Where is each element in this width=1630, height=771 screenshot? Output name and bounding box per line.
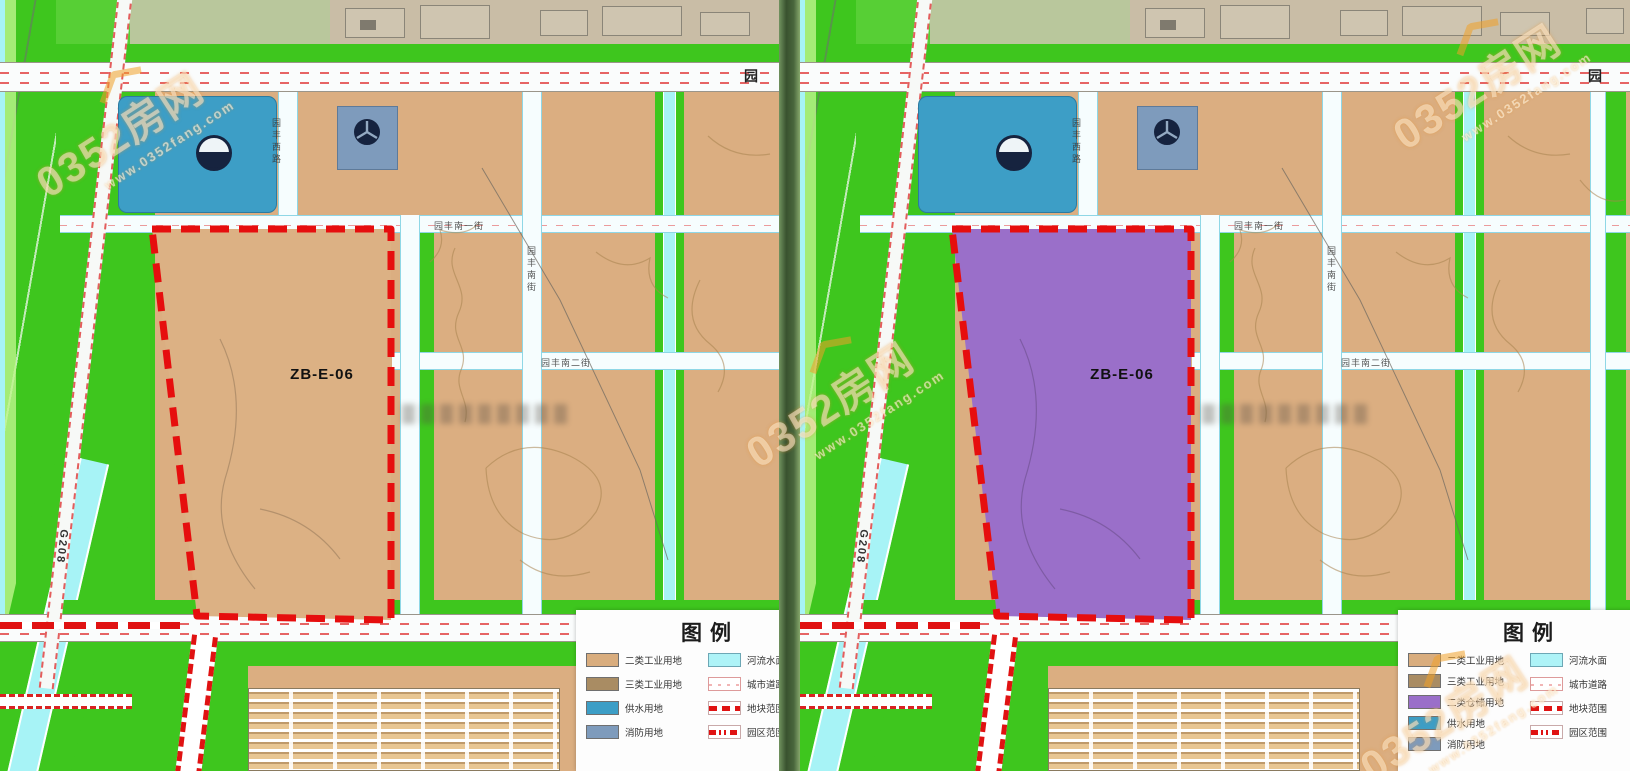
- legend-item-label: 消防用地: [625, 725, 663, 739]
- warehouse-row-buildings: [1048, 688, 1360, 771]
- legend-item: 消防用地: [586, 725, 708, 739]
- water-supply-parcel: [918, 96, 1077, 213]
- legend-item-label: 二类工业用地: [625, 653, 682, 667]
- building-outline: [1402, 6, 1482, 36]
- legend-swatch-boundary: [1530, 701, 1563, 715]
- road-vertical-east: [1322, 92, 1342, 614]
- green-buffer-strip: [856, 44, 1630, 62]
- legend-swatch-fill: [1408, 716, 1441, 730]
- building-outline: [602, 6, 682, 36]
- legend-swatch-fill: [586, 653, 619, 667]
- road-south-2nd-street: [1192, 352, 1630, 370]
- road-name-label-vertical: 园丰南街: [1325, 246, 1338, 294]
- fire-station-icon: [1152, 117, 1182, 147]
- legend-item-label: 地块范围: [1569, 701, 1607, 715]
- legend-item-label: 三类工业用地: [1447, 674, 1504, 688]
- parcel-code-label: ZB-E-06: [232, 366, 412, 383]
- legend-swatch-fill: [1408, 695, 1441, 709]
- legend-swatch-boundary: [708, 701, 741, 715]
- legend-item: 河流水面: [708, 653, 779, 667]
- olive-patch: [930, 0, 1130, 46]
- water-supply-parcel: [118, 96, 277, 213]
- olive-patch: [130, 0, 330, 46]
- legend-item: 供水用地: [1408, 716, 1530, 730]
- planning-map-panel: G208: [800, 0, 1630, 771]
- legend-item: 二类工业用地: [1408, 653, 1530, 667]
- building-outline: [1500, 12, 1550, 36]
- warehouse-row-buildings: [248, 688, 560, 771]
- road-stub-southwest: [800, 694, 932, 709]
- legend-swatch-fill: [1408, 653, 1441, 667]
- legend-swatch-fill: [1408, 737, 1441, 751]
- legend-item: 城市道路: [1530, 677, 1630, 691]
- legend-item: 三类工业用地: [1408, 674, 1530, 688]
- building-outline: [1586, 8, 1624, 34]
- legend-item: 地块范围: [1530, 701, 1630, 715]
- legend-column-1: 二类工业用地三类工业用地供水用地消防用地: [586, 653, 708, 749]
- legend-item-label: 城市道路: [1569, 677, 1607, 691]
- zb-e-06-parcel: [140, 219, 396, 627]
- legend-column-1: 二类工业用地三类工业用地二类仓储用地供水用地消防用地: [1408, 653, 1530, 758]
- road-stub-southwest: [0, 694, 132, 709]
- road-name-label: 园丰南二街: [541, 356, 591, 369]
- road-name-label-vertical: 园丰西路: [270, 118, 283, 166]
- road-name-label-vertical: 园丰南街: [525, 246, 538, 294]
- legend-item-label: 地块范围: [747, 701, 779, 715]
- legend-item-label: 二类仓储用地: [1447, 695, 1504, 709]
- faint-map-caption: [1202, 404, 1367, 424]
- legend-swatch-water: [708, 653, 741, 667]
- legend-item-label: 园区范围: [747, 725, 779, 739]
- legend-item: 园区范围: [708, 725, 779, 739]
- screenshot-stage: G208: [0, 0, 1630, 771]
- building-outline: [420, 5, 490, 39]
- legend-swatch-road: [708, 677, 741, 691]
- legend-swatch-zone: [1530, 725, 1563, 739]
- legend-item-label: 三类工业用地: [625, 677, 682, 691]
- building-footprint: [1160, 20, 1176, 30]
- legend-item-label: 供水用地: [1447, 716, 1485, 730]
- legend-swatch-fill: [586, 725, 619, 739]
- legend-item-label: 供水用地: [625, 701, 663, 715]
- legend-item-label: 二类工业用地: [1447, 653, 1504, 667]
- legend-column-2: 河流水面城市道路地块范围园区范围: [1530, 653, 1630, 758]
- building-outline: [700, 12, 750, 36]
- road-name-label: 园丰南一街: [434, 219, 484, 232]
- fire-station-icon: [352, 117, 382, 147]
- legend-swatch-fill: [1408, 674, 1441, 688]
- water-plant-icon: [996, 135, 1032, 171]
- building-outline: [540, 10, 588, 36]
- legend-column-2: 河流水面城市道路地块范围园区范围: [708, 653, 779, 749]
- road-name-label-vertical: 园丰西路: [1070, 118, 1083, 166]
- road-vertical-east: [522, 92, 542, 614]
- fire-protection-parcel: [1137, 106, 1198, 170]
- legend-item: 园区范围: [1530, 725, 1630, 739]
- legend-item: 地块范围: [708, 701, 779, 715]
- road-name-label: 园丰南二街: [1341, 356, 1391, 369]
- legend-item: 三类工业用地: [586, 677, 708, 691]
- legend-title: 图例: [576, 610, 779, 651]
- legend-title: 图例: [1398, 610, 1630, 651]
- fire-protection-parcel: [337, 106, 398, 170]
- highway-g208-label: G208: [54, 529, 70, 565]
- legend-item: 二类工业用地: [586, 653, 708, 667]
- legend-item: 消防用地: [1408, 737, 1530, 751]
- legend-item: 城市道路: [708, 677, 779, 691]
- legend-item-label: 消防用地: [1447, 737, 1485, 751]
- legend-item: 河流水面: [1530, 653, 1630, 667]
- legend-item-label: 城市道路: [747, 677, 779, 691]
- building-outline: [1340, 10, 1388, 36]
- faint-map-caption: [402, 404, 567, 424]
- top-road-name-label: 园 丰: [744, 66, 779, 86]
- top-road-name-label: 园 丰: [1588, 66, 1630, 86]
- legend-item: 供水用地: [586, 701, 708, 715]
- legend-swatch-zone: [708, 725, 741, 739]
- legend-item-label: 园区范围: [1569, 725, 1607, 739]
- highway-g208-label: G208: [854, 529, 870, 565]
- legend-item-label: 河流水面: [747, 653, 779, 667]
- building-footprint: [360, 20, 376, 30]
- water-plant-icon: [196, 135, 232, 171]
- legend-swatch-road: [1530, 677, 1563, 691]
- legend-swatch-fill: [586, 701, 619, 715]
- road-vertical-far-east: [1590, 92, 1606, 614]
- legend: 图例 二类工业用地三类工业用地供水用地消防用地 河流水面城市道路地块范围园区范围: [576, 610, 779, 771]
- legend: 图例 二类工业用地三类工业用地二类仓储用地供水用地消防用地 河流水面城市道路地块…: [1398, 610, 1630, 771]
- road-name-label: 园丰南一街: [1234, 219, 1284, 232]
- building-outline: [1220, 5, 1290, 39]
- legend-swatch-fill: [586, 677, 619, 691]
- legend-swatch-water: [1530, 653, 1563, 667]
- panel-divider: [779, 0, 800, 771]
- legend-item-label: 河流水面: [1569, 653, 1607, 667]
- planning-map-panel: G208: [0, 0, 779, 771]
- green-buffer-strip: [56, 44, 779, 62]
- parcel-code-label: ZB-E-06: [1032, 366, 1212, 383]
- legend-item: 二类仓储用地: [1408, 695, 1530, 709]
- zb-e-06-parcel: [940, 219, 1196, 627]
